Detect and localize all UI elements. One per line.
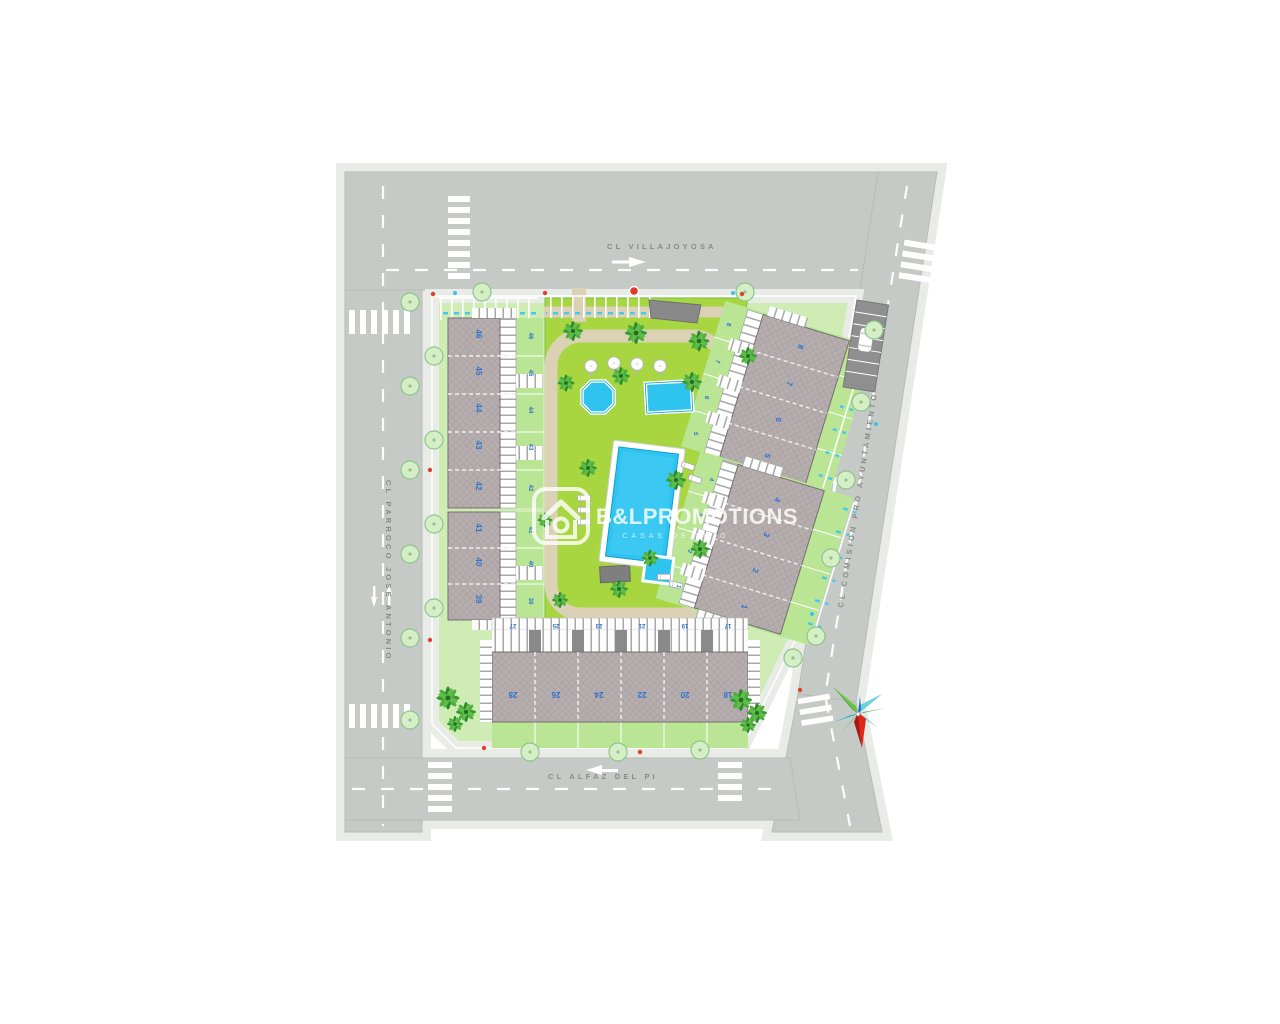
palm-tree-icon xyxy=(682,372,702,392)
palm-tree-icon xyxy=(558,375,575,392)
unit-number: 22 xyxy=(637,690,646,699)
unit-number: 44 xyxy=(474,404,483,413)
street-tree-icon xyxy=(473,283,491,301)
unit-number: 39 xyxy=(474,595,483,604)
hydrant-dot xyxy=(428,638,432,642)
street-tree-icon xyxy=(401,461,419,479)
palm-tree-icon xyxy=(740,717,756,733)
palm-tree-icon xyxy=(625,322,647,344)
unit-number: 45 xyxy=(474,367,483,376)
street-tree-icon xyxy=(736,283,754,301)
unit-number: 25 xyxy=(552,622,559,628)
building-block-bottom xyxy=(480,618,760,748)
street-tree-icon xyxy=(425,431,443,449)
unit-number: 41 xyxy=(474,524,483,533)
watermark-brand-text: B&LPROMOTIONS xyxy=(596,504,798,529)
unit-number: 17 xyxy=(724,622,731,628)
street-name-bottom: CL ALFAZ DEL PI xyxy=(548,772,658,781)
site-plan-svg: CL VILLAJOYOSA CL PARROCO JOSE ANTONIO C… xyxy=(0,0,1280,1024)
street-tree-icon xyxy=(401,293,419,311)
street-tree-icon xyxy=(401,629,419,647)
street-tree-icon xyxy=(609,743,627,761)
utility-dot xyxy=(731,291,735,295)
hydrant-dot xyxy=(431,292,435,296)
zebra-crossing-junction xyxy=(798,694,834,726)
parking-rows xyxy=(438,296,658,320)
street-tree-icon xyxy=(691,741,709,759)
utility-dot xyxy=(810,612,814,616)
street-tree-icon xyxy=(822,549,840,567)
unit-number: 19 xyxy=(681,622,688,628)
street-tree-icon xyxy=(807,627,825,645)
street-tree-icon xyxy=(401,711,419,729)
utility-building-garden xyxy=(600,565,631,583)
unit-number: 39 xyxy=(527,598,533,605)
palm-tree-icon xyxy=(739,347,757,365)
rect-pool xyxy=(645,381,693,413)
palm-tree-icon xyxy=(563,321,583,341)
street-tree-icon xyxy=(425,599,443,617)
hydrant-dot xyxy=(798,688,802,692)
unit-number: 21 xyxy=(638,622,645,628)
palm-tree-icon xyxy=(691,540,710,559)
unit-number: 42 xyxy=(474,482,483,491)
unit-number: 45 xyxy=(527,370,533,377)
unit-number: 20 xyxy=(680,690,689,699)
unit-number: 18 xyxy=(723,690,732,699)
unit-number: 46 xyxy=(527,333,533,340)
street-tree-icon xyxy=(425,347,443,365)
octagon-pool xyxy=(582,381,614,413)
street-tree-icon xyxy=(521,743,539,761)
palm-tree-icon xyxy=(579,459,597,477)
utility-dot xyxy=(874,422,878,426)
unit-number: 44 xyxy=(527,407,533,414)
hydrant-dot xyxy=(428,468,432,472)
street-tree-icon xyxy=(401,377,419,395)
hydrant-dot xyxy=(638,750,642,754)
palm-tree-icon xyxy=(642,550,659,567)
unit-number: 28 xyxy=(508,690,517,699)
unit-number: 24 xyxy=(594,690,603,699)
palm-tree-icon xyxy=(447,716,463,732)
unit-number: 40 xyxy=(527,561,533,568)
palm-tree-icon xyxy=(612,367,630,385)
hydrant-dot xyxy=(482,746,486,750)
utility-dot xyxy=(453,291,457,295)
street-top-surface xyxy=(345,172,884,290)
street-tree-icon xyxy=(865,321,883,339)
street-name-top: CL VILLAJOYOSA xyxy=(607,242,717,251)
street-tree-icon xyxy=(837,471,855,489)
unit-number: 42 xyxy=(527,485,533,492)
unit-number: 43 xyxy=(474,441,483,450)
unit-number: 46 xyxy=(474,330,483,339)
street-tree-icon xyxy=(401,545,419,563)
unit-number: 27 xyxy=(509,622,516,628)
palm-tree-icon xyxy=(666,470,686,490)
sunbed-icon xyxy=(658,574,671,580)
palm-tree-icon xyxy=(437,687,460,710)
entrance-marker xyxy=(630,287,639,296)
palm-tree-icon xyxy=(610,580,628,598)
street-name-left: CL PARROCO JOSE ANTONIO xyxy=(384,480,393,662)
street-tree-icon xyxy=(784,649,802,667)
unit-number: 26 xyxy=(551,690,560,699)
street-tree-icon xyxy=(852,393,870,411)
unit-number: 40 xyxy=(474,558,483,567)
palm-tree-icon xyxy=(689,331,710,352)
unit-number: 43 xyxy=(527,444,533,451)
street-tree-icon xyxy=(425,515,443,533)
hydrant-dot xyxy=(740,292,744,296)
watermark-tagline-text: CASAS DE LUJO xyxy=(622,533,729,540)
unit-number: 23 xyxy=(595,622,602,628)
hydrant-dot xyxy=(543,291,547,295)
site-plan-canvas: CL VILLAJOYOSA CL PARROCO JOSE ANTONIO C… xyxy=(0,0,1280,1024)
palm-tree-icon xyxy=(552,592,568,608)
